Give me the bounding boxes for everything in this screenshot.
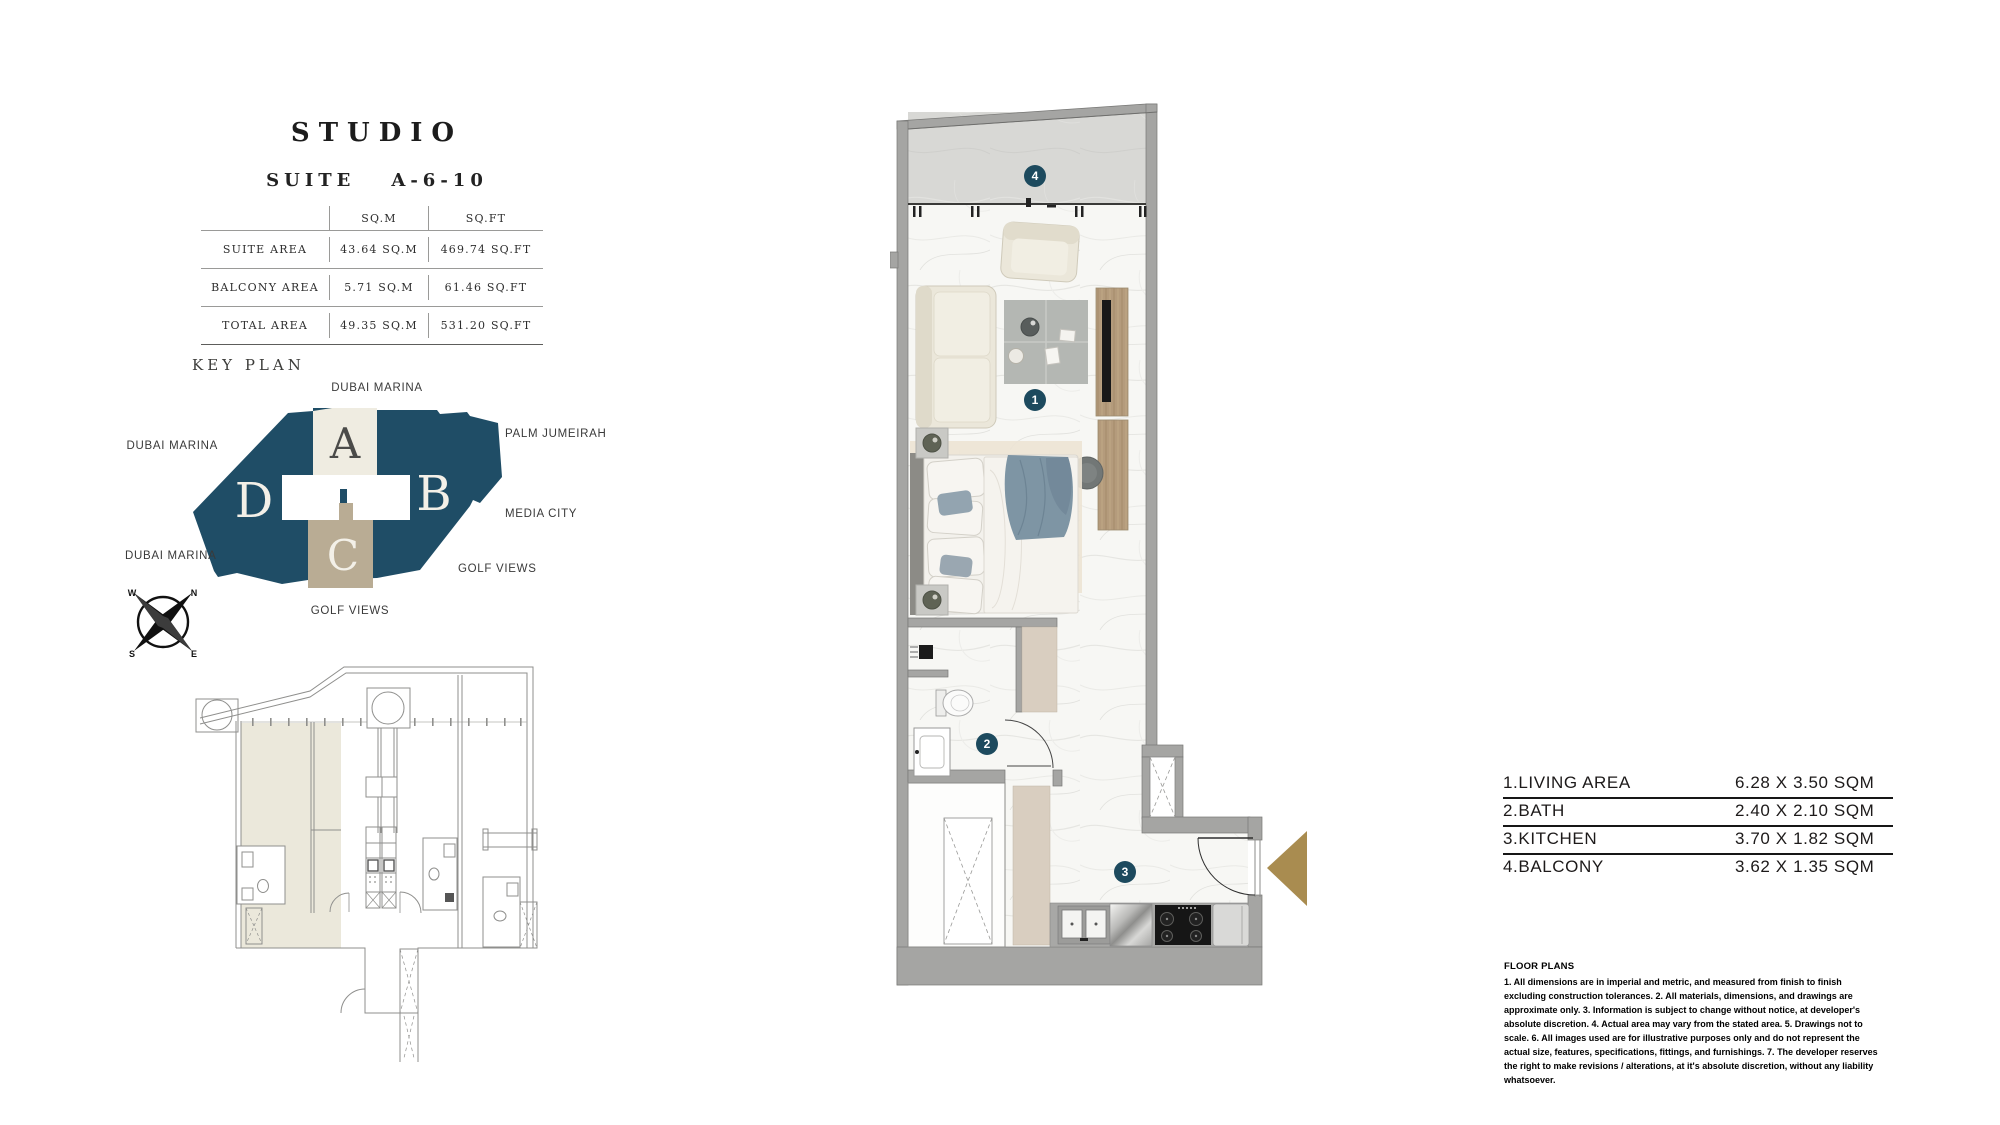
area-table-row-total: TOTAL AREA 49.35 SQ.M 531.20 SQ.FT xyxy=(201,307,543,345)
sofa xyxy=(916,286,996,428)
core-left xyxy=(282,475,340,520)
floor-plan-brochure-page: STUDIO SUITE A-6-10 SQ.M SQ.FT SUITE ARE… xyxy=(0,0,2000,1125)
section-b-letter: B xyxy=(416,466,451,522)
tv-screen xyxy=(1102,300,1111,402)
section-d-letter: D xyxy=(235,473,273,529)
core-stub xyxy=(339,503,353,520)
disclaimer-block: FLOOR PLANS 1. All dimensions are in imp… xyxy=(1504,961,1878,1088)
area-table-row-suite: SUITE AREA 43.64 SQ.M 469.74 SQ.FT xyxy=(201,231,543,269)
disclaimer-title: FLOOR PLANS xyxy=(1504,961,1878,972)
page-title: STUDIO xyxy=(232,118,522,148)
legend-row-kitchen: 3.KITCHEN 3.70 X 1.82 SQM xyxy=(1503,827,1893,855)
section-c-letter: C xyxy=(327,531,359,580)
fridge xyxy=(1213,904,1249,946)
dishwasher xyxy=(1110,904,1152,946)
core-bridge xyxy=(340,475,347,489)
legend-dims: 3.62 X 1.35 SQM xyxy=(1735,857,1893,877)
area-table-header: SQ.M SQ.FT xyxy=(201,206,543,231)
marker-living-area: 1 xyxy=(1024,389,1046,411)
key-plan-label-bottom-left: DUBAI MARINA xyxy=(125,550,216,562)
legend-row-bath: 2.BATH 2.40 X 2.10 SQM xyxy=(1503,799,1893,827)
suite-label: SUITE xyxy=(266,170,355,191)
row-label: SUITE AREA xyxy=(201,237,329,262)
key-plan-label-media-city: MEDIA CITY xyxy=(505,508,577,520)
toilet-bowl xyxy=(943,690,973,716)
legend-label: 1.LIVING AREA xyxy=(1503,773,1735,793)
area-table-header-blank xyxy=(201,213,329,225)
key-plan-label-golf-views-right: GOLF VIEWS xyxy=(458,563,537,575)
key-plan-label-golf-views-bottom: GOLF VIEWS xyxy=(285,605,415,617)
legend-row-living: 1.LIVING AREA 6.28 X 3.50 SQM xyxy=(1503,771,1893,799)
compass-s: S xyxy=(129,649,135,659)
compass-n: N xyxy=(191,588,198,598)
legend-dims: 2.40 X 2.10 SQM xyxy=(1735,801,1893,821)
area-table-row-balcony: BALCONY AREA 5.71 SQ.M 61.46 SQ.FT xyxy=(201,269,543,307)
compass-w: W xyxy=(128,588,137,598)
area-table-header-sqft: SQ.FT xyxy=(428,206,543,231)
coffee-table-rug xyxy=(1004,300,1088,384)
shower-head xyxy=(919,645,933,659)
legend-dims: 3.70 X 1.82 SQM xyxy=(1735,829,1893,849)
marker-bath: 2 xyxy=(976,733,998,755)
row-sqft: 531.20 SQ.FT xyxy=(428,313,543,338)
key-plan-heading: KEY PLAN xyxy=(192,356,305,374)
suite-floor-plan xyxy=(890,100,1330,1000)
floor-overview-plan xyxy=(185,645,550,1080)
row-label: BALCONY AREA xyxy=(201,275,329,300)
key-plan-label-palm-jumeirah: PALM JUMEIRAH xyxy=(505,428,607,440)
row-sqft: 469.74 SQ.FT xyxy=(428,237,543,262)
area-table-header-sqm: SQ.M xyxy=(329,206,428,231)
suite-number: A-6-10 xyxy=(391,170,487,191)
tv-unit xyxy=(1096,288,1128,416)
bath-sink xyxy=(914,728,950,776)
beige-pillar xyxy=(1022,627,1057,712)
row-sqm: 49.35 SQ.M xyxy=(329,313,428,338)
key-plan-label-top: DUBAI MARINA xyxy=(312,382,442,394)
row-label: TOTAL AREA xyxy=(201,313,329,338)
beige-strip xyxy=(1013,786,1050,945)
legend-label: 3.KITCHEN xyxy=(1503,829,1735,849)
round-table xyxy=(1021,318,1039,336)
area-table: SQ.M SQ.FT SUITE AREA 43.64 SQ.M 469.74 … xyxy=(201,206,543,345)
bottom-wall xyxy=(897,947,1262,985)
room-dimensions-legend: 1.LIVING AREA 6.28 X 3.50 SQM 2.BATH 2.4… xyxy=(1503,771,1893,881)
legend-row-balcony: 4.BALCONY 3.62 X 1.35 SQM xyxy=(1503,855,1893,881)
key-plan-label-left: DUBAI MARINA xyxy=(118,440,218,452)
legend-dims: 6.28 X 3.50 SQM xyxy=(1735,773,1893,793)
row-sqft: 61.46 SQ.FT xyxy=(428,275,543,300)
armchair xyxy=(1000,221,1080,282)
legend-label: 2.BATH xyxy=(1503,801,1735,821)
section-a-letter: A xyxy=(329,419,361,468)
closet-void xyxy=(908,783,1005,947)
legend-label: 4.BALCONY xyxy=(1503,857,1735,877)
core-right xyxy=(347,475,410,520)
entry-arrow-icon xyxy=(1267,831,1307,906)
disclaimer-body: 1. All dimensions are in imperial and me… xyxy=(1504,976,1878,1088)
marker-kitchen: 3 xyxy=(1114,861,1136,883)
suite-subtitle: SUITE A-6-10 xyxy=(232,170,522,191)
kitchen-counter xyxy=(1050,903,1249,947)
left-wall xyxy=(897,121,908,985)
highlighted-suite-area xyxy=(241,723,341,948)
row-sqm: 5.71 SQ.M xyxy=(329,275,428,300)
row-sqm: 43.64 SQ.M xyxy=(329,237,428,262)
marker-balcony: 4 xyxy=(1024,165,1046,187)
right-wall xyxy=(1146,104,1157,752)
